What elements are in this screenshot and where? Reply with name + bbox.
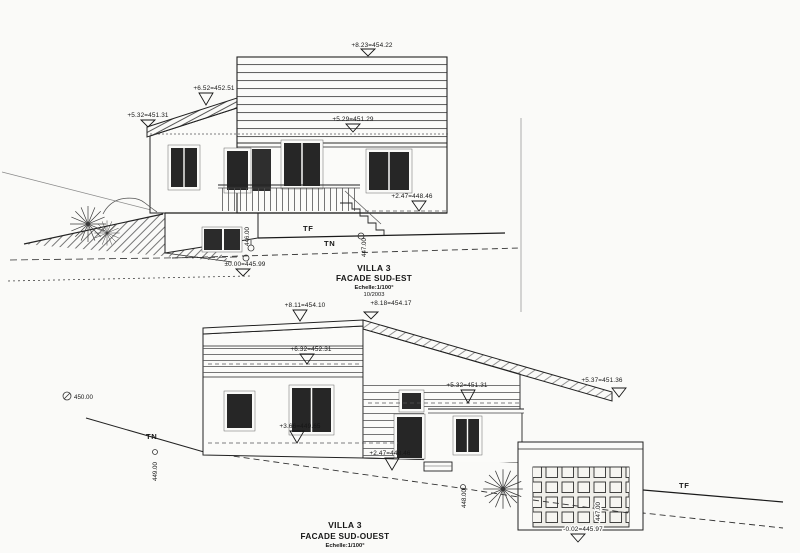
small-window	[402, 393, 421, 409]
level-label-ridge: +8.23=454.22	[351, 42, 393, 49]
level-label-garage: -0.02=445.97	[563, 526, 603, 533]
so-subtitle: FACADE SUD-OUEST	[301, 532, 390, 541]
level-label-upper-left: +6.52=452.51	[193, 85, 235, 92]
basement-window	[204, 229, 222, 250]
drawing-sheet: 446.00 447.00 +8.23=454.22 +6.52=452.51 …	[0, 0, 800, 553]
spot-level-450: 450.00	[74, 394, 93, 401]
level-label-floor: +5.29=451.29	[332, 116, 374, 123]
so-title: VILLA 3	[328, 520, 362, 530]
level-label-mid: +3.66=449.65	[279, 423, 321, 430]
level-label-landing: +2.47=448.46	[369, 450, 411, 457]
level-label-top-right: +8.18=454.17	[370, 300, 412, 307]
tf-label-so: TF	[679, 481, 689, 490]
spot-level-447: 447.00	[595, 502, 602, 521]
level-label-eave-left: +5.32=451.31	[127, 112, 169, 119]
se-title: VILLA 3	[357, 263, 391, 273]
garage-block	[518, 442, 643, 530]
se-date: 10/2003	[364, 292, 385, 298]
shrub-icon	[70, 206, 106, 242]
se-scale: Echelle:1/100°	[354, 285, 394, 291]
basement-window	[224, 229, 240, 250]
level-label-band: +6.32=452.31	[290, 346, 332, 353]
drawing-canvas: 446.00 447.00 +8.23=454.22 +6.52=452.51 …	[0, 0, 800, 553]
se-subtitle: FACADE SUD-EST	[336, 274, 412, 283]
siding-band	[237, 57, 447, 143]
spot-level-447: 447.00	[361, 238, 368, 257]
window	[227, 394, 252, 428]
shrub-icon	[483, 469, 523, 509]
so-scale: Echelle:1/100°	[325, 543, 365, 549]
level-label-terrace: +2.47=448.46	[391, 193, 433, 200]
siding-band	[203, 346, 363, 377]
level-label-ground: ±0.00=445.99	[224, 261, 265, 268]
shrub-icon	[94, 220, 119, 245]
tf-label-se: TF	[303, 224, 313, 233]
window	[227, 151, 248, 190]
level-label-porch: +5.32=451.31	[446, 382, 488, 389]
tn-label-se: TN	[324, 239, 335, 248]
entry-landing	[424, 462, 452, 471]
garage-door-panels	[533, 467, 629, 527]
tn-label-so: TN	[146, 432, 157, 441]
spot-level-446: 446.00	[244, 227, 251, 246]
spot-level-449: 449.00	[152, 462, 159, 481]
spot-level-448: 448.00	[461, 489, 468, 508]
level-label-eave-right: +5.37=451.36	[581, 377, 623, 384]
level-label-top-left: +8.11=454.10	[285, 302, 326, 309]
